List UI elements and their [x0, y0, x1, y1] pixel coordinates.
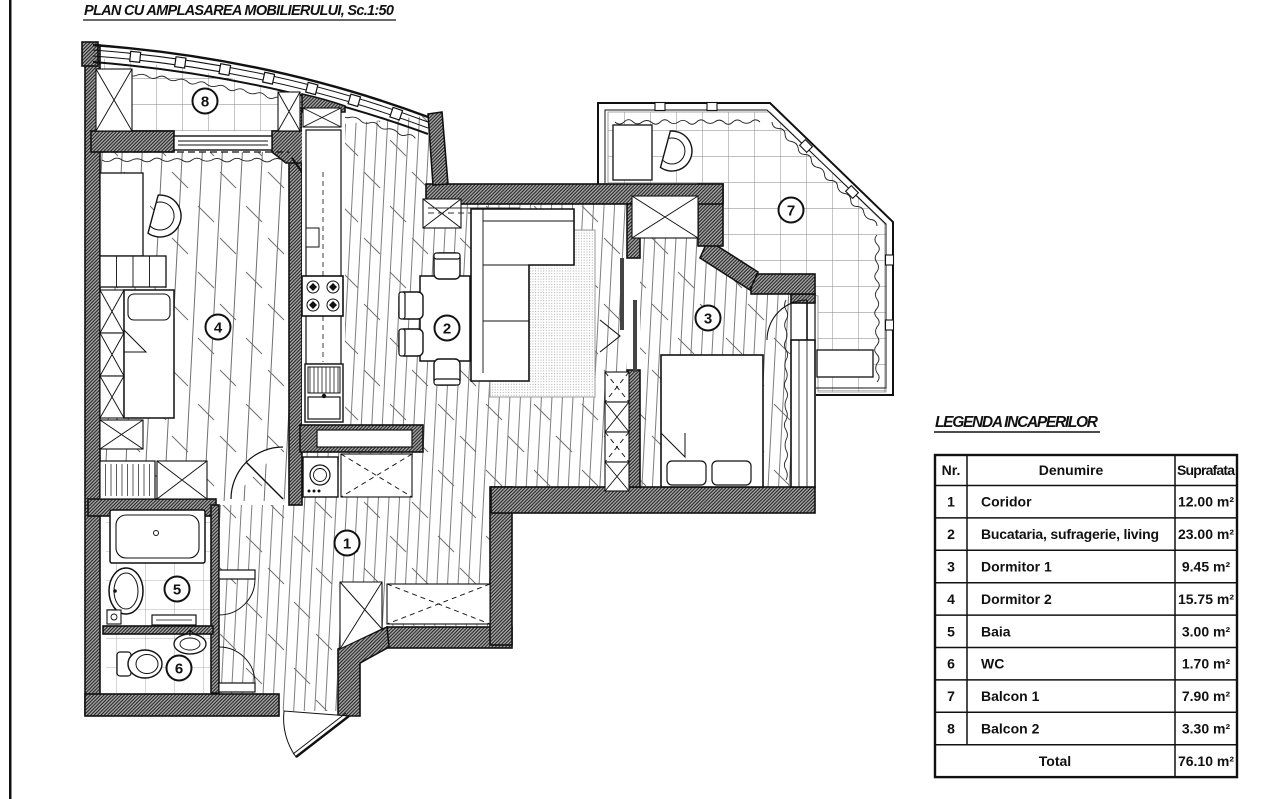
svg-text:23.00 m²: 23.00 m² — [1178, 526, 1234, 542]
svg-text:Dormitor 2: Dormitor 2 — [981, 591, 1052, 607]
svg-text:7: 7 — [947, 688, 955, 704]
svg-text:Nr.: Nr. — [942, 462, 961, 478]
svg-text:2: 2 — [947, 526, 955, 542]
svg-text:76.10 m²: 76.10 m² — [1178, 753, 1234, 769]
svg-text:Balcon 2: Balcon 2 — [981, 721, 1040, 737]
svg-text:8: 8 — [201, 94, 209, 111]
svg-text:3: 3 — [704, 311, 712, 328]
svg-text:1: 1 — [947, 494, 955, 510]
svg-text:6: 6 — [947, 656, 955, 672]
svg-text:LEGENDA INCAPERILOR: LEGENDA INCAPERILOR — [935, 414, 1099, 431]
svg-text:3.00 m²: 3.00 m² — [1182, 623, 1231, 639]
svg-text:Dormitor 1: Dormitor 1 — [981, 559, 1052, 575]
svg-text:WC: WC — [981, 656, 1004, 672]
svg-text:PLAN CU AMPLASAREA MOBILIERULU: PLAN CU AMPLASAREA MOBILIERULUI, Sc.1:50 — [84, 3, 394, 19]
svg-text:5: 5 — [947, 623, 955, 639]
svg-text:Baia: Baia — [981, 623, 1011, 639]
svg-text:8: 8 — [947, 721, 955, 737]
svg-text:3: 3 — [947, 559, 955, 575]
svg-text:Coridor: Coridor — [981, 494, 1032, 510]
svg-text:2: 2 — [443, 321, 451, 338]
svg-text:Denumire: Denumire — [1039, 462, 1104, 478]
svg-text:6: 6 — [175, 661, 183, 678]
svg-text:7.90 m²: 7.90 m² — [1182, 688, 1231, 704]
svg-text:4: 4 — [947, 591, 955, 607]
svg-text:15.75 m²: 15.75 m² — [1178, 591, 1234, 607]
svg-text:Suprafata: Suprafata — [1177, 462, 1235, 478]
svg-text:Bucataria, sufragerie, living: Bucataria, sufragerie, living — [981, 526, 1159, 542]
svg-text:Balcon 1: Balcon 1 — [981, 688, 1040, 704]
svg-text:Total: Total — [1039, 753, 1071, 769]
svg-text:3.30 m²: 3.30 m² — [1182, 721, 1231, 737]
svg-text:1: 1 — [343, 536, 351, 553]
svg-text:9.45 m²: 9.45 m² — [1182, 559, 1231, 575]
svg-text:7: 7 — [787, 203, 795, 220]
svg-text:5: 5 — [173, 582, 181, 599]
svg-text:1.70 m²: 1.70 m² — [1182, 656, 1231, 672]
svg-text:4: 4 — [214, 320, 223, 337]
svg-text:12.00 m²: 12.00 m² — [1178, 494, 1234, 510]
